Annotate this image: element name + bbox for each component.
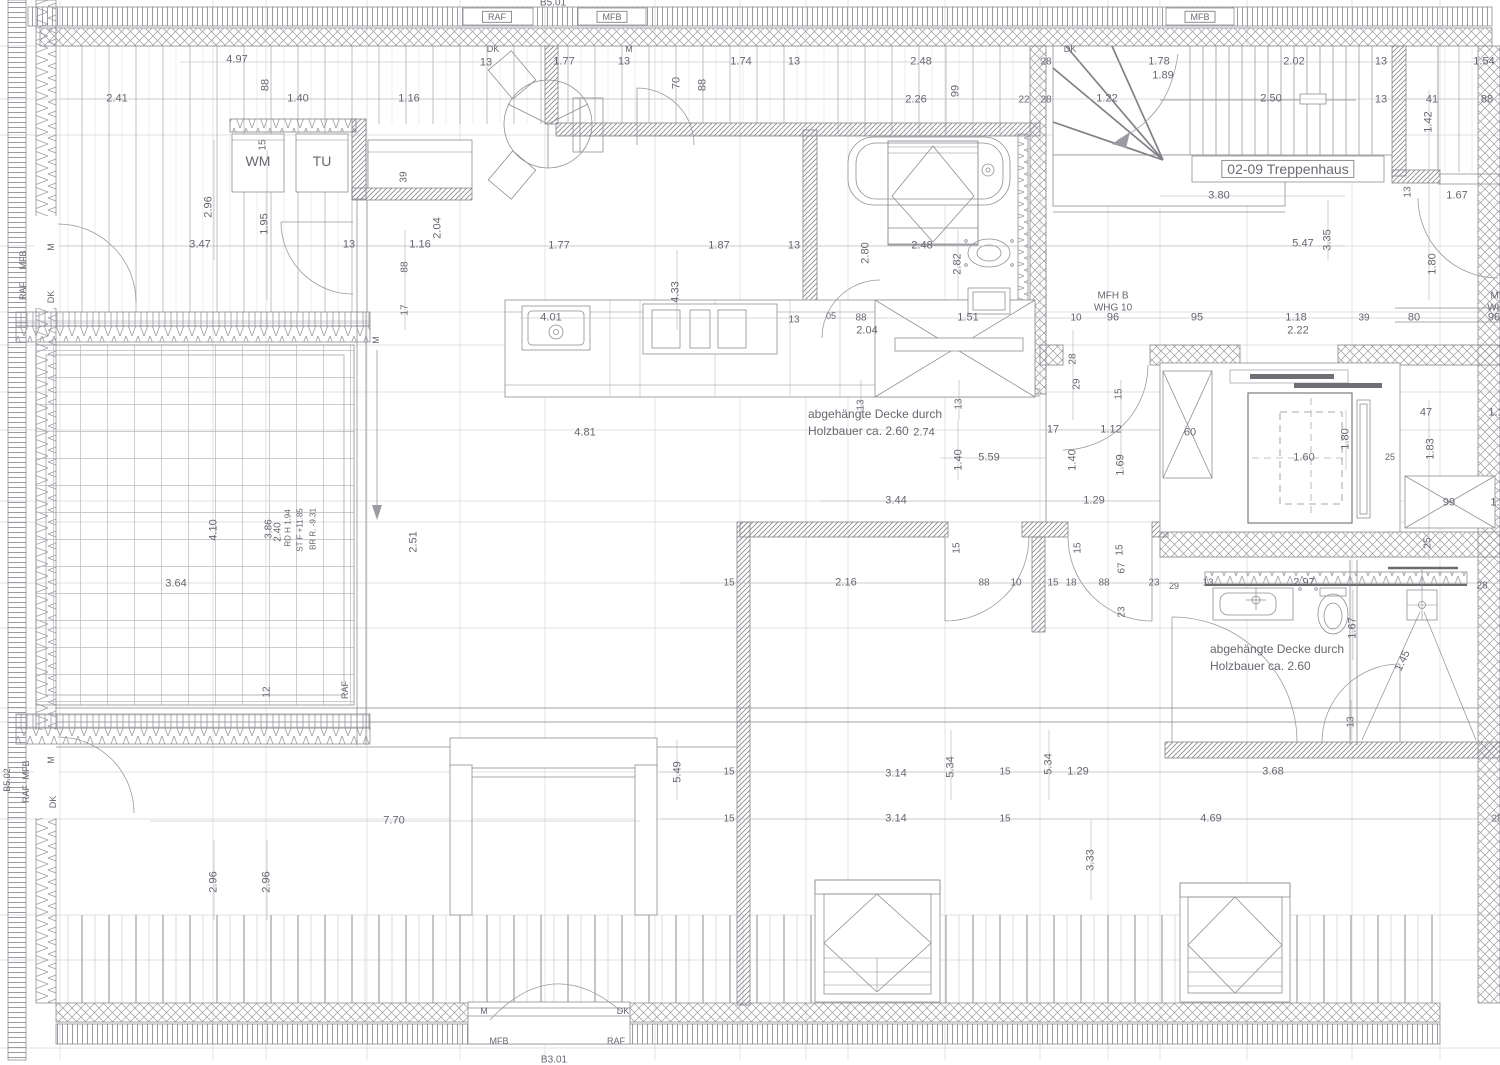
floor-plan-drawing [0, 0, 1500, 1065]
terrace [16, 312, 382, 745]
elevator [1160, 363, 1495, 532]
floor-plan: RAFMFBMFBB5.014.97DK131.7713M1.74132.48D… [0, 0, 1500, 1065]
chair [488, 151, 535, 199]
sink [522, 306, 590, 350]
elevator-door [1294, 383, 1382, 388]
bathroom-whg10 [848, 137, 1013, 314]
stairs [1053, 46, 1392, 212]
door-arc [1322, 664, 1400, 742]
door-arc [945, 537, 1029, 621]
dormer-frame [450, 738, 657, 915]
door-arc [1172, 617, 1297, 742]
door-arc [58, 737, 134, 813]
door-arc [1068, 537, 1152, 621]
skylight [815, 880, 940, 1002]
skylight [1180, 883, 1290, 1002]
bathroom-whg11 [1213, 568, 1476, 740]
dryer [296, 134, 348, 192]
elevator-door [1250, 374, 1334, 379]
door-arc [1063, 365, 1148, 450]
closet [368, 140, 472, 188]
washing-machine [232, 134, 284, 192]
section-arrow [372, 505, 382, 520]
toilet [968, 239, 1010, 267]
shower-spray [1362, 612, 1476, 740]
kitchen-counter [505, 300, 1035, 397]
